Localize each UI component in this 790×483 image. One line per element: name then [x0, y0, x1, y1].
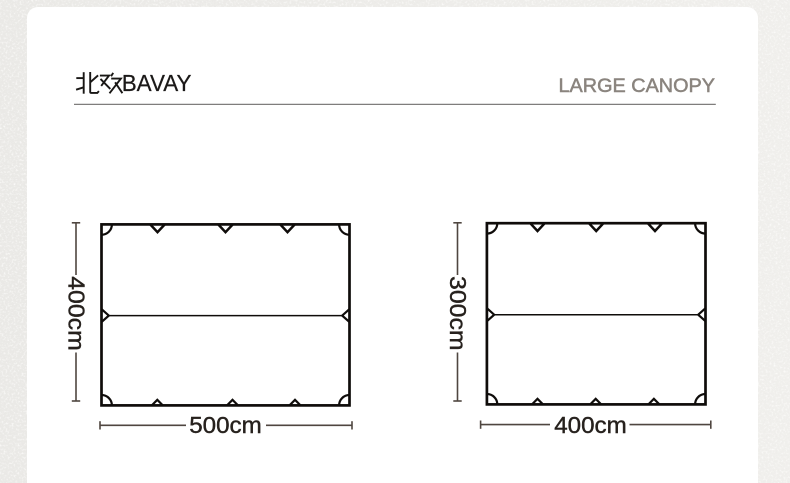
svg-text:300cm: 300cm [445, 276, 471, 351]
svg-text:500cm: 500cm [189, 412, 262, 438]
svg-text:400cm: 400cm [64, 276, 90, 351]
svg-text:400cm: 400cm [554, 412, 627, 438]
svg-text:LARGE CANOPY: LARGE CANOPY [559, 76, 716, 97]
svg-text:BAVAY: BAVAY [122, 70, 192, 96]
